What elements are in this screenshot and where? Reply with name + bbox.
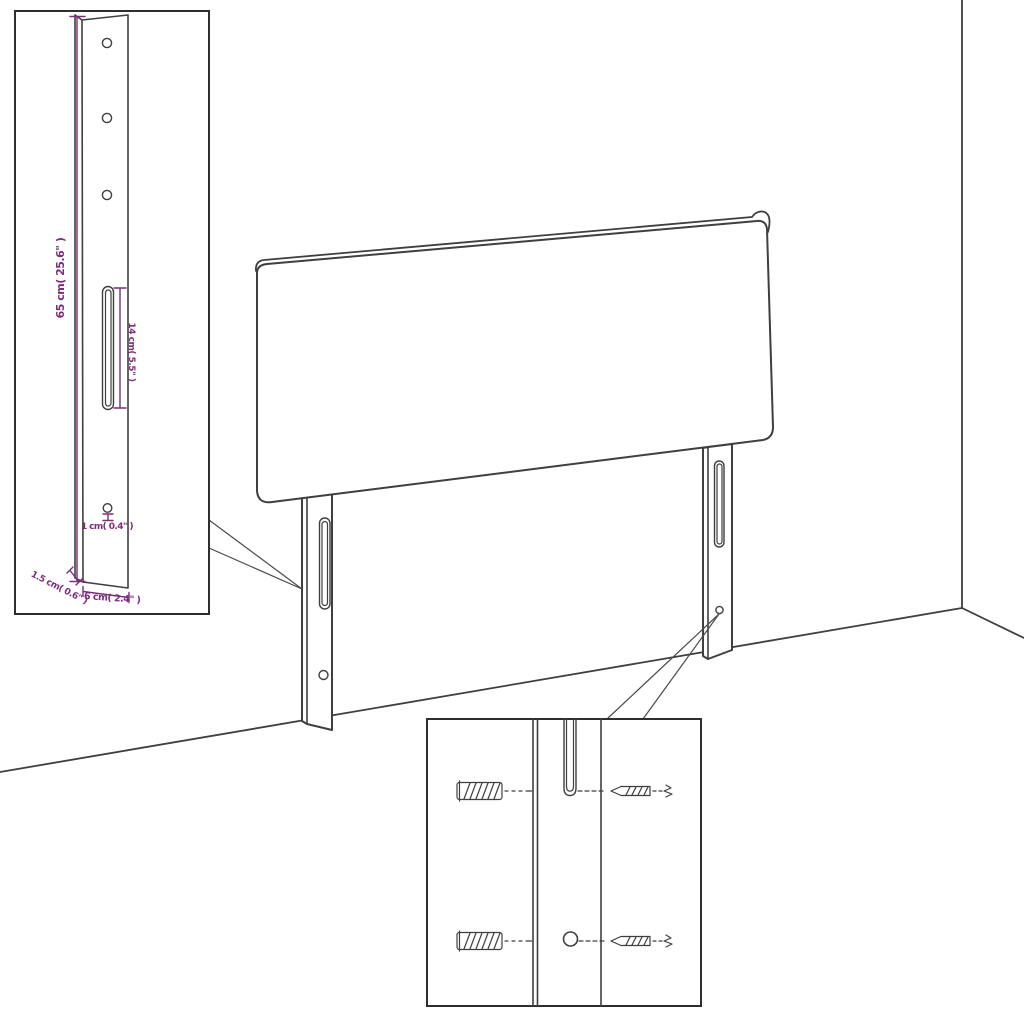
assembly-diagram: 65 cm( 25.6" ) 14 cm( 5.5" ) 1 cm( 0.4" … bbox=[0, 0, 1024, 1024]
wall-mount-inset bbox=[427, 719, 701, 1006]
dimension-label-slot-length: 14 cm( 5.5" ) bbox=[126, 323, 136, 382]
floor-line-right bbox=[962, 608, 1024, 638]
callout-lines-left-inset bbox=[209, 520, 302, 589]
headboard-front-face bbox=[257, 221, 773, 502]
right-leg bbox=[703, 444, 732, 659]
diagram-svg: 65 cm( 25.6" ) 14 cm( 5.5" ) 1 cm( 0.4" … bbox=[0, 0, 1024, 1024]
left-leg bbox=[302, 493, 332, 730]
headboard bbox=[256, 211, 773, 502]
leg-detail-inset: 65 cm( 25.6" ) 14 cm( 5.5" ) 1 cm( 0.4" … bbox=[15, 11, 209, 614]
callout-line bbox=[643, 614, 719, 719]
dimension-label-hole-diameter: 1 cm( 0.4" ) bbox=[81, 522, 134, 532]
dimension-label-leg-height: 65 cm( 25.6" ) bbox=[54, 237, 67, 318]
